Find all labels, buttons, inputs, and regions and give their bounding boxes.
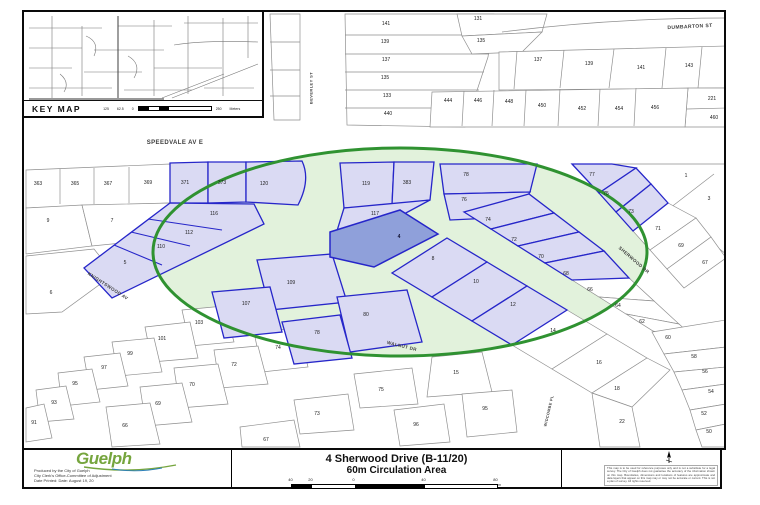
key-scale-label: 0 [132,107,134,111]
city-logo: Guelph [76,451,186,467]
scale-label: 40 [288,477,292,482]
scale-bar: m 402004080 [291,477,503,490]
key-scale-label: 125 [103,107,109,111]
key-map-band: KEY MAP 125 62.5 0 250 Meters [24,100,262,116]
scale-label: 20 [308,477,312,482]
key-scale-label: 250 [216,107,222,111]
page: { "map": { "key_map": { "title": "KEY MA… [0,0,760,505]
scale-label: 40 [421,477,425,482]
credit-line: Date Printed: Date: August 19, 20 [34,478,227,483]
title-block-left: Guelph Produced by the City of Guelph Ci… [24,450,232,487]
key-scale-bar [138,106,212,111]
map-subtitle: 60m Circulation Area [232,465,561,476]
scale-bar-segments [291,484,498,489]
map-title: 4 Sherwood Drive (B-11/20) [232,453,561,465]
scale-unit: m [498,483,501,487]
key-map-title: KEY MAP [32,104,81,114]
title-block-right: This map is to be used for reference pur… [562,450,720,487]
key-scale-label: 62.5 [117,107,124,111]
scale-label: 80 [493,477,497,482]
disclaimer-text: This map is to be used for reference pur… [604,465,718,486]
key-map: KEY MAP 125 62.5 0 250 Meters [22,10,264,118]
title-block-center: 4 Sherwood Drive (B-11/20) 60m Circulati… [232,450,562,487]
key-scale-units: Meters [230,107,241,111]
key-map-streets [24,12,262,102]
title-block: Guelph Produced by the City of Guelph Ci… [22,448,722,489]
key-map-scale: 125 62.5 0 250 Meters [99,106,244,111]
logo-swoosh-icon [82,464,178,472]
north-arrow-icon [664,451,674,464]
scale-label: 0 [352,477,354,482]
